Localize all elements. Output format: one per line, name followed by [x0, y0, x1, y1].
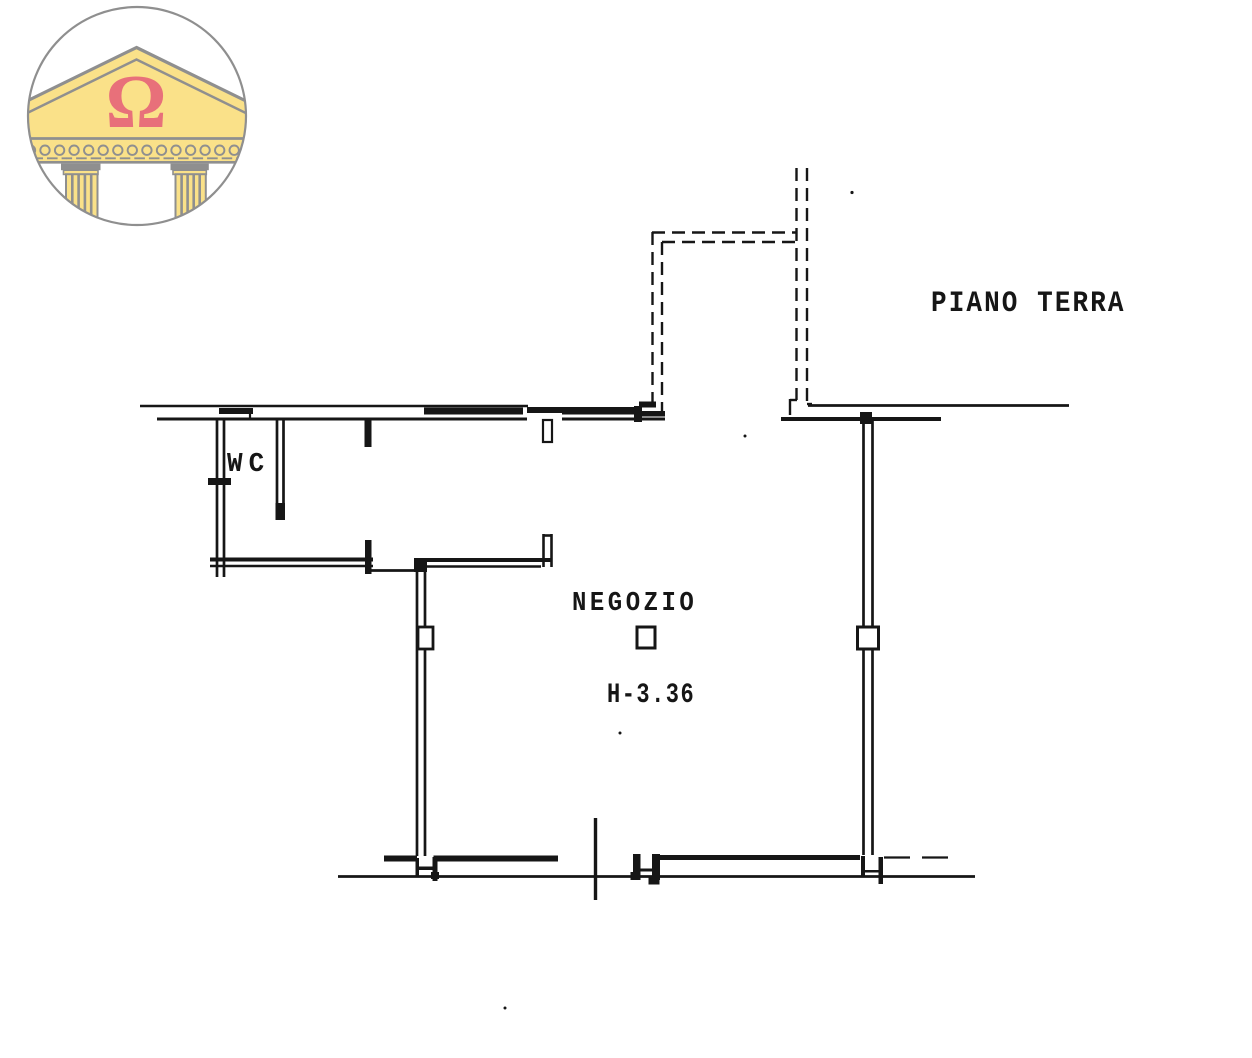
svg-text:H-3.36: H-3.36 — [607, 680, 695, 711]
svg-text:WC: WC — [227, 449, 270, 480]
svg-text:Ω: Ω — [106, 60, 167, 144]
svg-text:PIANO TERRA: PIANO TERRA — [931, 288, 1126, 321]
svg-text:NEGOZIO: NEGOZIO — [572, 588, 697, 618]
